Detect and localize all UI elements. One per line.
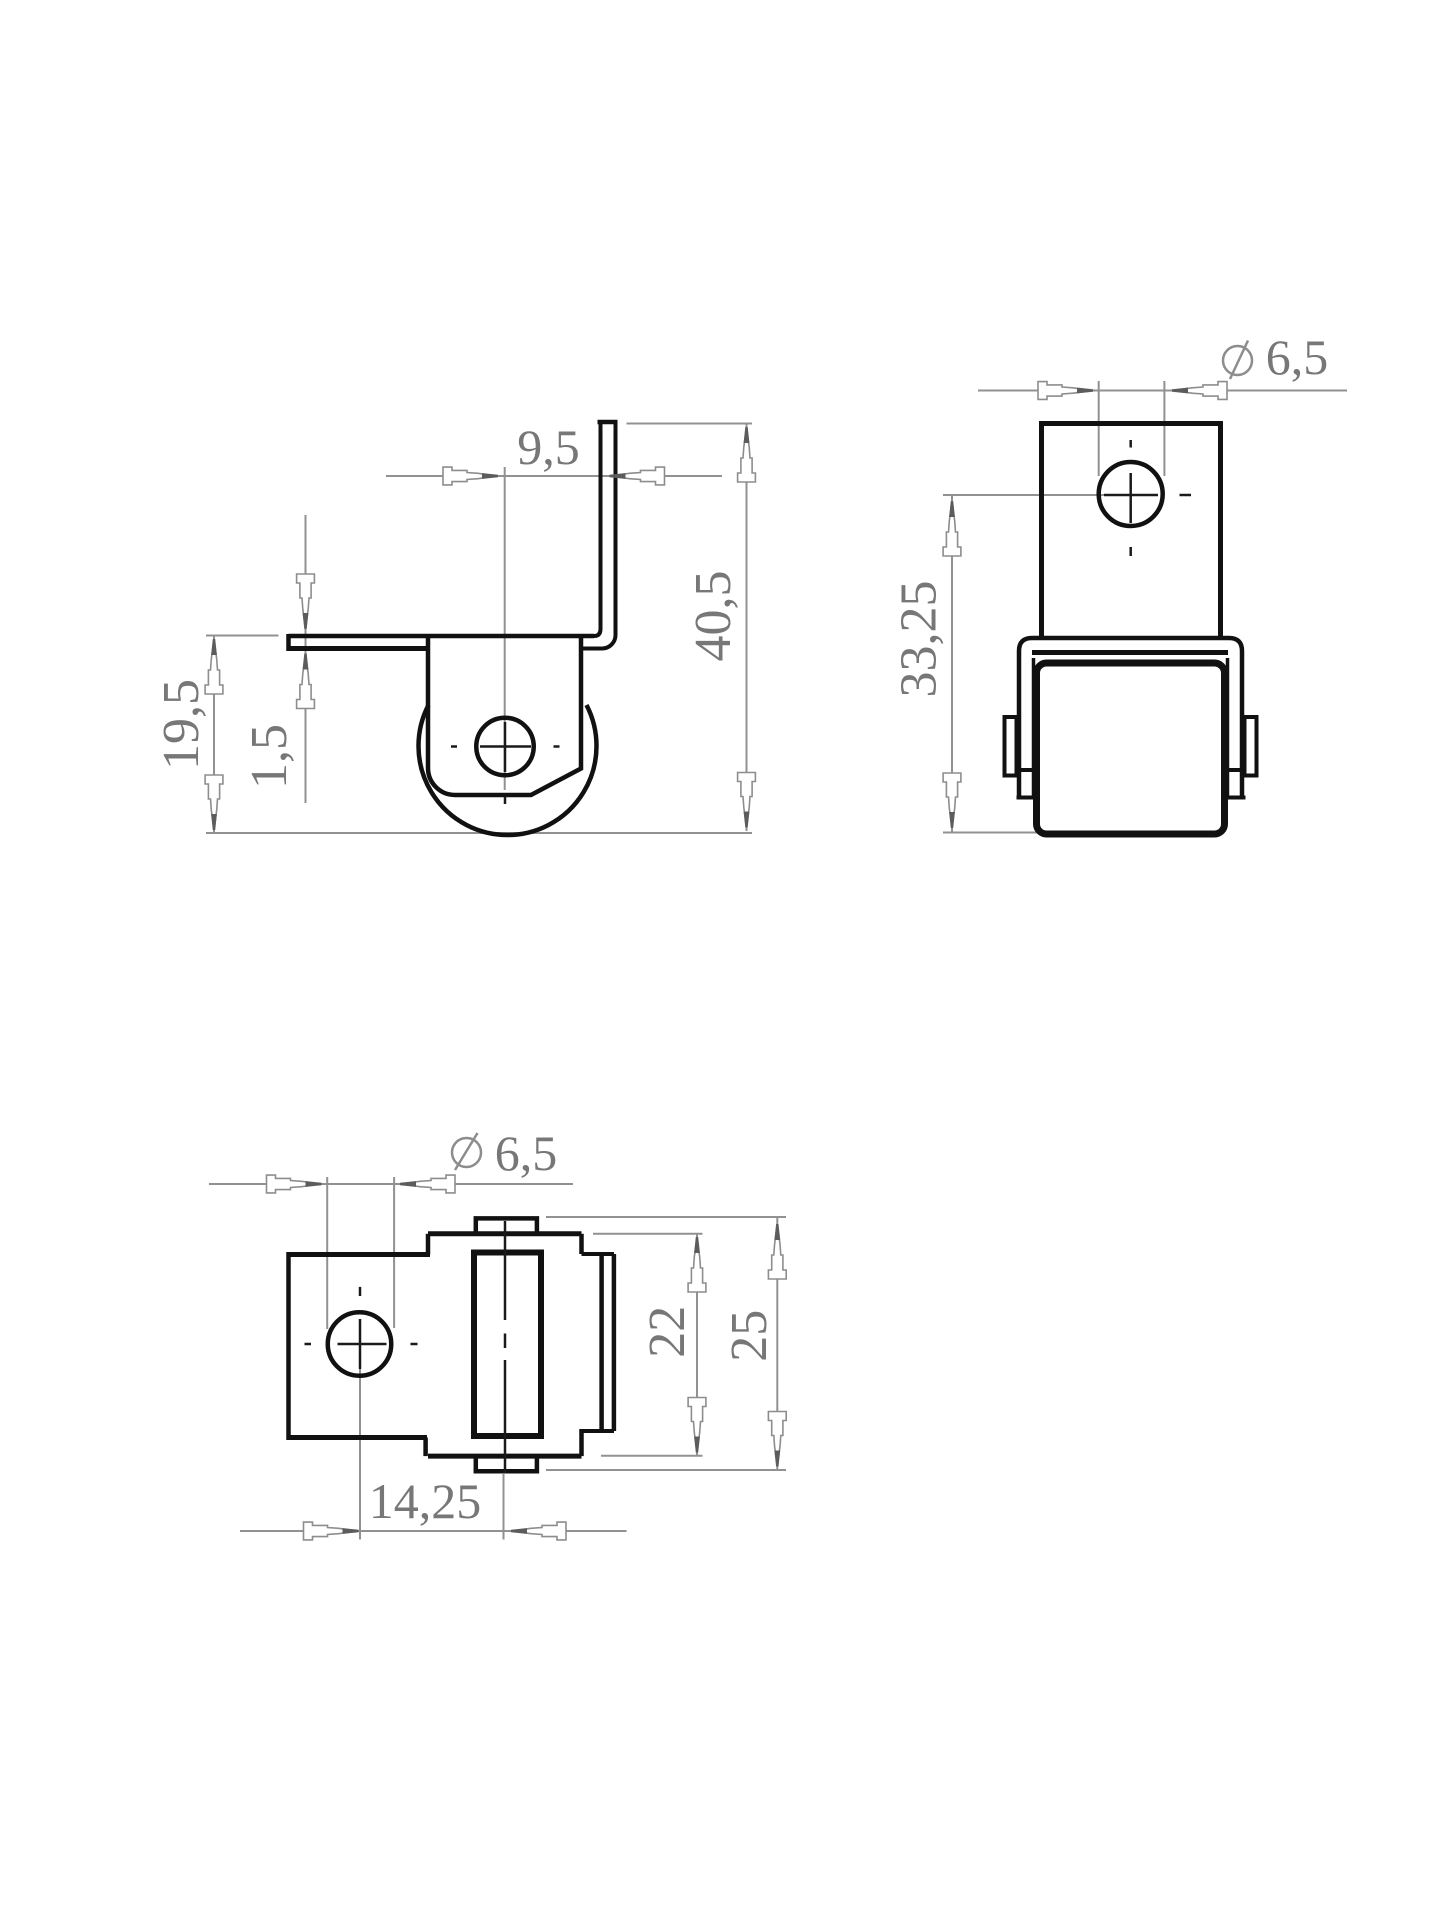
svg-text:9,5: 9,5 <box>517 419 580 475</box>
svg-text:14,25: 14,25 <box>369 1473 482 1529</box>
svg-text:6,5: 6,5 <box>1266 329 1329 385</box>
svg-text:1,5: 1,5 <box>241 724 298 789</box>
svg-text:19,5: 19,5 <box>153 679 210 770</box>
svg-text:25: 25 <box>721 1310 778 1362</box>
svg-text:33,25: 33,25 <box>891 581 948 698</box>
svg-text:40,5: 40,5 <box>685 571 742 662</box>
svg-text:22: 22 <box>639 1306 696 1358</box>
svg-text:6,5: 6,5 <box>495 1125 558 1181</box>
